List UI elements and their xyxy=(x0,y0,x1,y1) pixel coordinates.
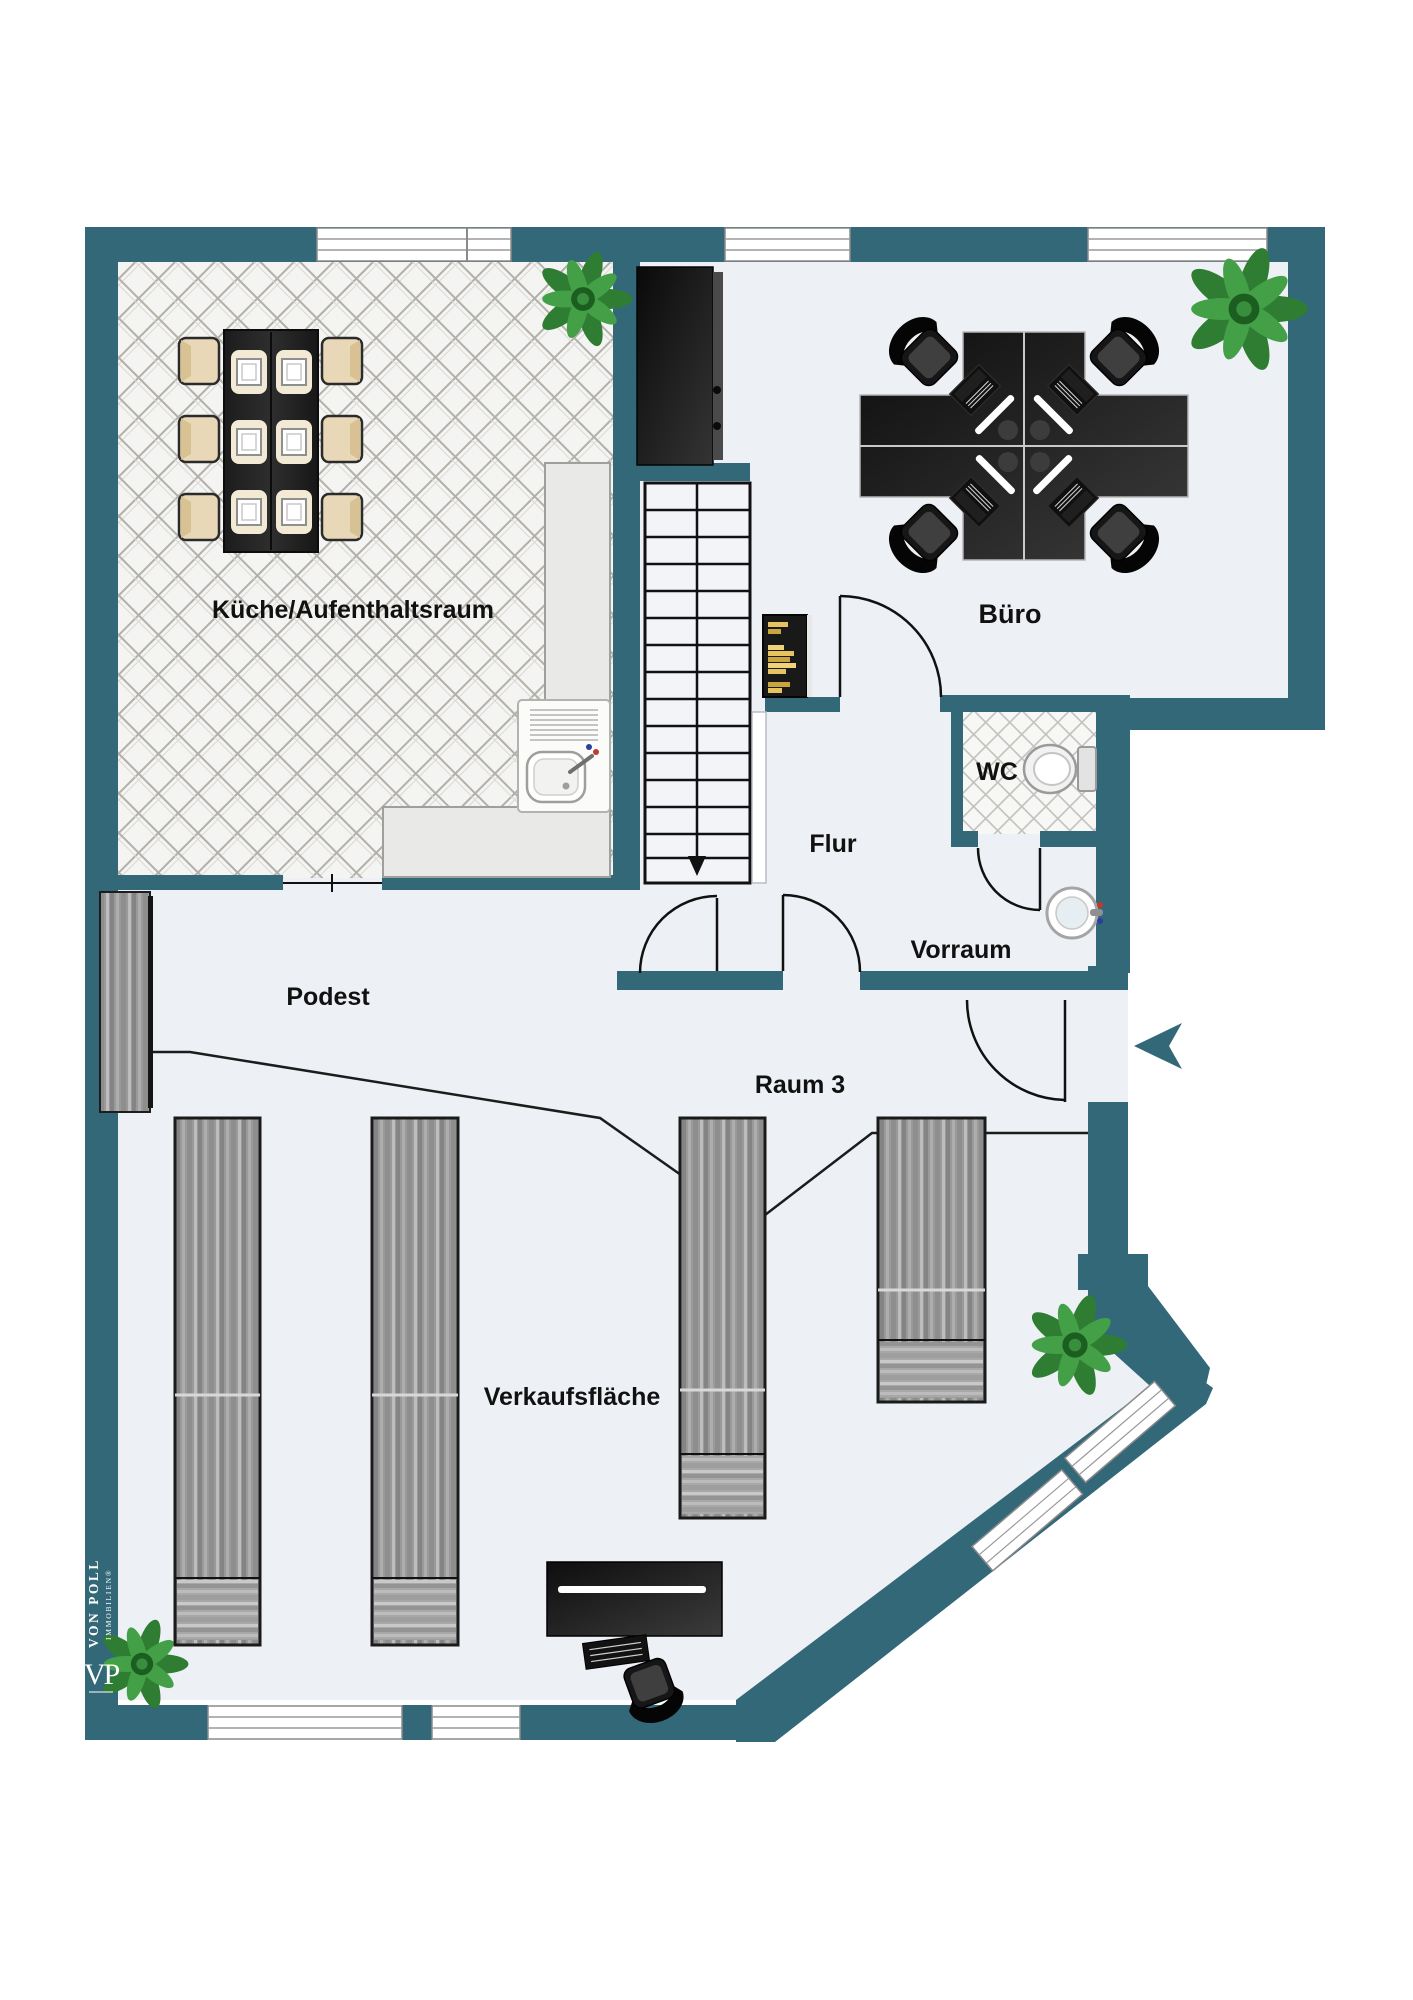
entrance-arrow-icon xyxy=(1134,1023,1182,1069)
label-hallway: Flur xyxy=(809,830,856,858)
faucet-icon xyxy=(1090,909,1103,916)
wall-under-bookshelf xyxy=(765,697,840,712)
dining-chair xyxy=(322,416,362,462)
dining-chair xyxy=(179,416,219,462)
wall-kitchen-right xyxy=(613,227,640,890)
wall-office-bottom xyxy=(1126,698,1325,730)
logo-company: VON POLL xyxy=(86,1558,101,1648)
monitor xyxy=(558,1586,706,1593)
wall-stairfoot-bottom xyxy=(617,971,783,990)
place-setting xyxy=(231,490,267,534)
place-setting xyxy=(231,420,267,464)
label-kitchen: Küche/Aufenthaltsraum xyxy=(212,596,494,624)
label-anteroom: Vorraum xyxy=(911,936,1012,964)
dining-chair xyxy=(179,338,219,384)
kitchen-sink xyxy=(518,700,610,812)
shelf-unit xyxy=(175,1118,260,1645)
label-room3: Raum 3 xyxy=(755,1071,845,1099)
platform-cabinet xyxy=(100,892,153,1112)
kitchen-counter-bottom xyxy=(383,807,610,877)
window-office xyxy=(1088,228,1267,261)
toilet xyxy=(1024,745,1096,793)
place-setting xyxy=(276,490,312,534)
place-setting xyxy=(231,350,267,394)
label-wc: WC xyxy=(976,758,1018,786)
logo-monogram: VP xyxy=(84,1658,120,1691)
label-sales: Verkaufsfläche xyxy=(484,1383,661,1411)
place-setting xyxy=(276,420,312,464)
wall-wc-bottom-a xyxy=(951,831,978,847)
bookshelf xyxy=(763,615,812,697)
logo-division: IMMOBILIEN® xyxy=(104,1569,113,1640)
wall-bottom-a xyxy=(85,1705,208,1740)
place-setting xyxy=(276,350,312,394)
wall-below-entrance xyxy=(1088,1102,1128,1254)
dining-chair xyxy=(322,494,362,540)
window-sales-left xyxy=(208,1706,402,1739)
wall-entrance-step xyxy=(1078,1254,1148,1290)
label-office: Büro xyxy=(979,599,1042,629)
shelf-unit xyxy=(878,1118,985,1402)
dining-chair xyxy=(179,494,219,540)
wardrobe-cabinet xyxy=(637,267,723,465)
floorplan-svg: Küche/Aufenthaltsraum Büro WC Flur Vorra… xyxy=(0,0,1413,2000)
window-sales-mid xyxy=(432,1706,520,1739)
wall-kitchen-bottom-a xyxy=(118,875,283,890)
stair-rail-strip xyxy=(752,712,766,883)
wall-bottom-pillar xyxy=(402,1705,432,1740)
staircase xyxy=(645,483,750,883)
wall-wc-right xyxy=(1096,695,1130,973)
wall-above-entrance xyxy=(1088,966,1128,990)
dining-chair xyxy=(322,338,362,384)
window-kitchen xyxy=(317,228,511,261)
shelf-unit xyxy=(680,1118,765,1518)
wall-wc-bottom-b xyxy=(1040,831,1096,847)
floorplan-canvas: Küche/Aufenthaltsraum Büro WC Flur Vorra… xyxy=(0,0,1413,2000)
wall-anteroom-bottom xyxy=(860,971,1088,990)
window-landing xyxy=(725,228,850,261)
label-platform: Podest xyxy=(286,983,370,1011)
wall-wc-left xyxy=(951,710,963,835)
entrance-doorway-floor xyxy=(1080,988,1128,1104)
shelf-unit xyxy=(372,1118,458,1645)
